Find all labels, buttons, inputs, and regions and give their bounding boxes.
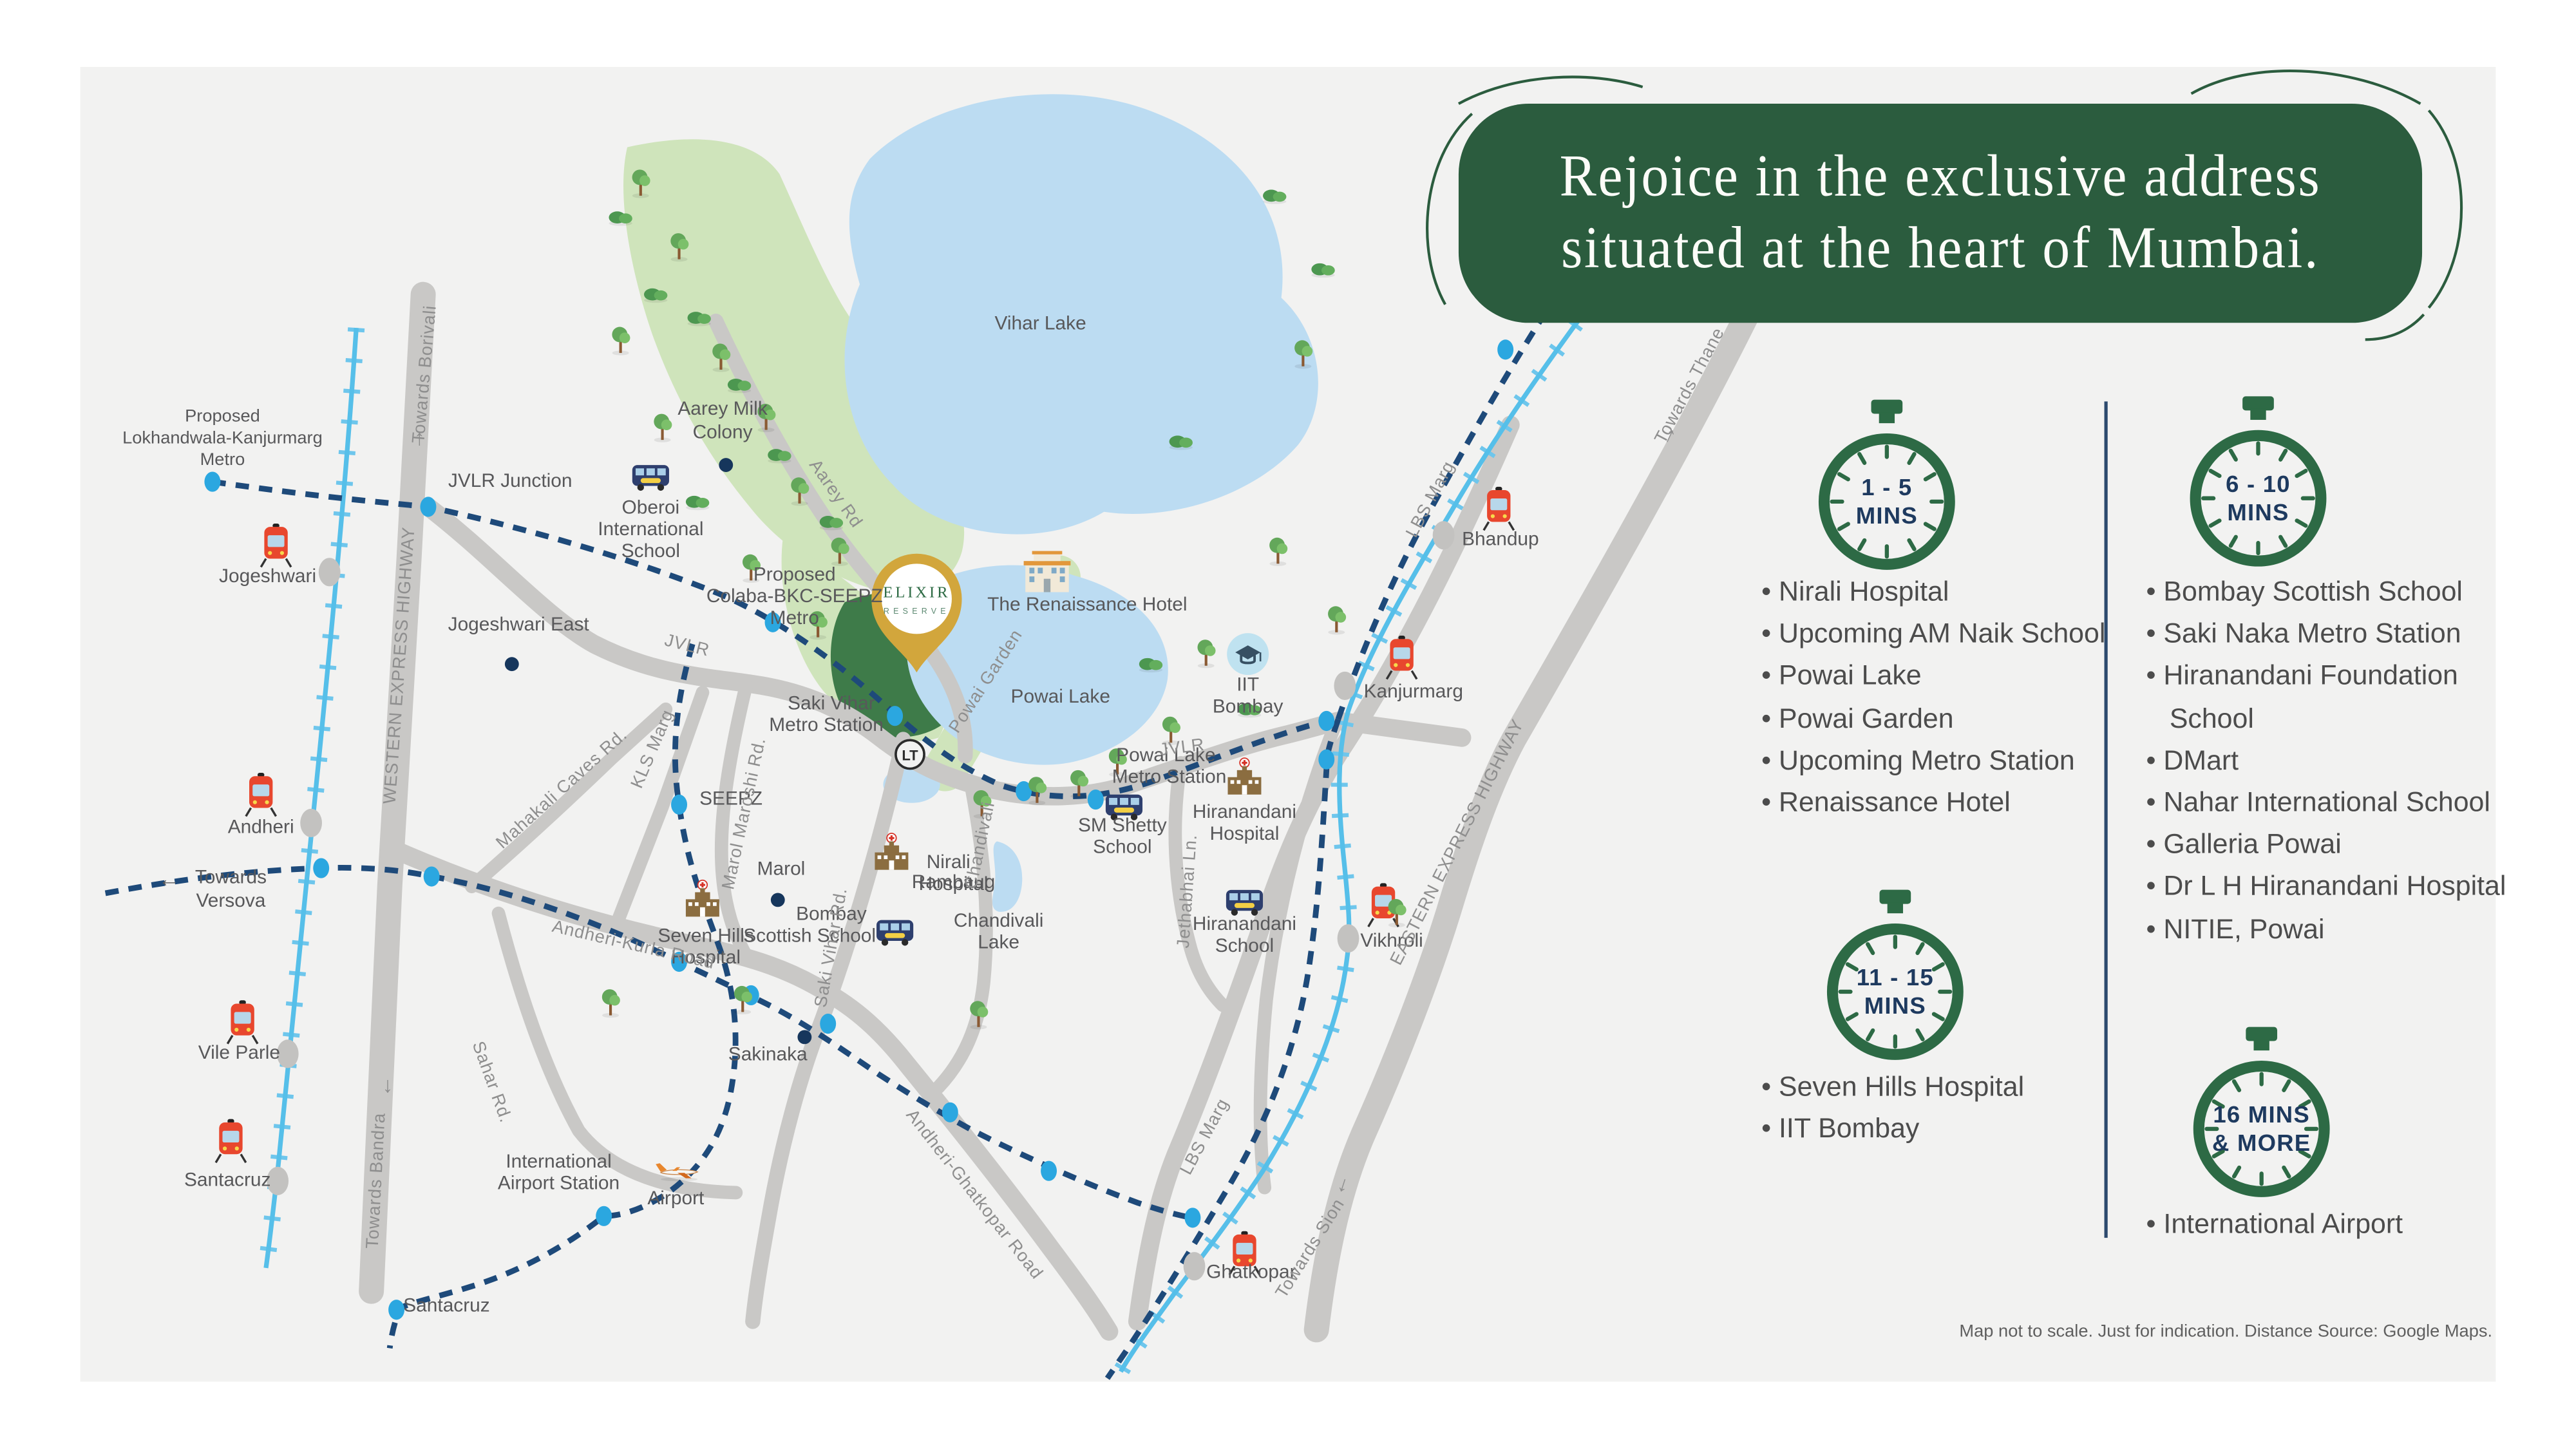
stopwatch-11-15: 11 - 15 MINS <box>1817 888 1974 1064</box>
rail-station-marker <box>1184 1252 1206 1280</box>
road-label: Andheri-Ghatkopar Road <box>902 1105 1047 1283</box>
bush-icon <box>1311 263 1334 278</box>
map-place-label: Marol <box>757 858 806 879</box>
map-place-label: Vihar Lake <box>994 313 1086 334</box>
map-place-label: ← <box>158 867 180 892</box>
map-place-label: Powai Lake <box>1011 686 1110 707</box>
svg-text:6 - 10: 6 - 10 <box>2226 471 2291 497</box>
tree-icon <box>1328 606 1346 634</box>
rail-station-marker <box>1334 672 1356 700</box>
svg-text:& MORE: & MORE <box>2212 1130 2311 1156</box>
metro-station-dot <box>820 1014 836 1034</box>
map-place-label: Towards <box>195 866 267 887</box>
map-place-label: JVLR Junction <box>448 470 573 491</box>
map-place-label: Hiranandani <box>1193 801 1296 822</box>
train-icon <box>1484 487 1514 531</box>
bus-icon <box>632 465 669 491</box>
poi-item: Powai Garden <box>1761 699 2116 741</box>
metro-station-dot <box>1184 1207 1200 1227</box>
map-place-label: SM Shetty <box>1078 815 1167 836</box>
map-place-label: Hiranandani <box>1193 913 1296 934</box>
map-place-label: Chandivali <box>954 910 1043 931</box>
map-place-label: School <box>1215 935 1274 956</box>
svg-text:1 - 5: 1 - 5 <box>1861 474 1912 500</box>
map-place-label: Proposed <box>185 406 260 426</box>
map-place-label: Kanjurmarg <box>1364 681 1463 702</box>
map-place-label: Scottish School <box>743 925 876 946</box>
project-name: ELIXIR <box>883 583 950 601</box>
poi-list-1-5: Nirali HospitalUpcoming AM Naik SchoolPo… <box>1761 572 2116 825</box>
poi-item: Renaissance Hotel <box>1761 783 2116 825</box>
metro-station-dot <box>942 1103 958 1122</box>
map-place-label: Oberoi <box>622 497 680 518</box>
metro-station-dot <box>596 1206 612 1226</box>
road-label: EASTERN EXPRESS HIGHWAY <box>1386 716 1528 969</box>
metro-station-dot <box>1318 750 1334 770</box>
map-place-label: International <box>506 1151 611 1172</box>
map-place-label: Jogeshwari <box>219 565 316 587</box>
poi-item: Upcoming Metro Station <box>1761 741 2116 782</box>
place-dot <box>771 893 785 907</box>
metro-station-dot <box>1318 711 1334 731</box>
map-place-label: Metro <box>200 449 245 469</box>
map-place-label: Aarey Milk <box>677 398 767 419</box>
project-sub: RESERVE <box>884 607 950 616</box>
map-place-label: Andheri <box>228 817 294 838</box>
metro-station-dot <box>671 795 687 815</box>
map-place-label: Colaba-BKC-SEEPZ <box>706 585 883 607</box>
rail-station-marker <box>319 558 341 586</box>
svg-text:MINS: MINS <box>1856 502 1918 529</box>
map-place-label: School <box>621 540 680 562</box>
metro-station-dot <box>313 858 329 878</box>
plane-icon <box>656 1163 697 1181</box>
svg-text:LT: LT <box>902 747 918 763</box>
metro-station-dot <box>1497 339 1513 359</box>
train-icon <box>216 1119 246 1163</box>
tree-icon <box>602 989 620 1018</box>
place-dot <box>797 1030 811 1044</box>
svg-text:MINS: MINS <box>1864 992 1926 1019</box>
svg-text:16 MINS: 16 MINS <box>2213 1101 2310 1128</box>
headline-banner: Rejoice in the exclusive address situate… <box>1459 104 2422 323</box>
map-place-label: Santacruz <box>403 1294 489 1316</box>
stopwatch-icon: 1 - 5 MINS <box>1808 398 1965 574</box>
stopwatch-icon: 16 MINS & MORE <box>2183 1025 2340 1201</box>
map-place-label: Sakinaka <box>728 1044 808 1065</box>
rail-station-marker <box>1338 924 1359 952</box>
lt-logo-icon: LT <box>896 740 924 768</box>
map-place-label: IIT <box>1236 674 1259 696</box>
hospital-icon <box>1227 758 1261 795</box>
poi-item: Dr L H Hiranandani Hospital <box>2146 867 2537 909</box>
map-place-label: Metro Station <box>1112 766 1227 788</box>
headline-line2: situated at the heart of Mumbai. <box>1561 216 2320 283</box>
tree-icon <box>1197 639 1215 668</box>
stopwatch-16-more: 16 MINS & MORE <box>2183 1025 2340 1201</box>
map-place-label: Hospital <box>1210 823 1280 844</box>
poi-item: Powai Lake <box>1761 656 2116 698</box>
train-icon <box>261 524 291 567</box>
poi-item: International Airport <box>2146 1204 2537 1246</box>
map-place-label: Bombay <box>1213 696 1283 717</box>
rail-station-marker <box>300 809 322 837</box>
map-place-label: Lokhandwala-Kanjurmarg <box>122 427 323 447</box>
stopwatch-6-10: 6 - 10 MINS <box>2179 395 2336 571</box>
poi-item: DMart <box>2146 741 2537 782</box>
map-place-label: Versova <box>196 890 265 911</box>
poi-item: Upcoming AM Naik School <box>1761 614 2116 656</box>
train-icon <box>1387 636 1417 679</box>
metro-station-dot <box>1088 790 1104 810</box>
place-dot <box>719 458 733 472</box>
map-place-label: Airport <box>647 1188 705 1209</box>
map-disclaimer: Map not to scale. Just for indication. D… <box>1959 1321 2492 1341</box>
poi-item: Bombay Scottish School <box>2146 572 2537 614</box>
poi-list-16-more: International Airport <box>2146 1204 2537 1246</box>
iit-icon <box>1227 633 1269 675</box>
stopwatch-1-5: 1 - 5 MINS <box>1808 398 1965 574</box>
map-place-label: Metro Station <box>769 714 884 735</box>
metro-station-dot <box>1041 1161 1057 1181</box>
road-label: Sahar Rd. <box>469 1038 516 1125</box>
page: LT ELIXIR RESERVE Vihar LakeAarey MilkCo… <box>0 0 2576 1449</box>
poi-item: Galleria Powai <box>2146 825 2537 867</box>
map-place-label: The Renaissance Hotel <box>987 594 1187 615</box>
metro-station-dot <box>204 471 220 491</box>
map-place-label: Proposed <box>753 563 836 585</box>
bush-icon <box>686 496 709 510</box>
road-label: Mahakali Caves Rd. <box>492 724 631 853</box>
hospital-icon <box>686 880 719 917</box>
poi-list-11-15: Seven Hills HospitalIIT Bombay <box>1761 1067 2116 1151</box>
svg-text:11 - 15: 11 - 15 <box>1857 964 1934 990</box>
tree-icon <box>654 414 672 442</box>
poi-item: Nirali Hospital <box>1761 572 2116 614</box>
map-place-label: Metro <box>770 607 819 629</box>
map-place-label: Saki Vihar <box>788 692 875 714</box>
tree-icon <box>612 327 630 355</box>
stopwatch-icon: 6 - 10 MINS <box>2179 395 2336 571</box>
train-icon <box>246 773 276 817</box>
poi-item: NITIE, Powai <box>2146 909 2537 951</box>
bus-icon <box>876 920 913 946</box>
svg-text:MINS: MINS <box>2227 499 2289 526</box>
map-place-label: Lake <box>978 932 1019 953</box>
map-place-label: Colony <box>693 422 753 443</box>
map-place-label: Jogeshwari East <box>448 614 590 635</box>
metro-station-dot <box>388 1300 404 1320</box>
poi-item: Saki Naka Metro Station <box>2146 614 2537 656</box>
rail-station-marker <box>1433 521 1455 549</box>
map-place-label: School <box>1093 837 1151 858</box>
poi-item: IIT Bombay <box>1761 1110 2116 1151</box>
poi-item: Nahar International School <box>2146 783 2537 825</box>
road-label: ↓ <box>383 1073 394 1097</box>
map-place-label: International <box>598 518 703 540</box>
stopwatch-icon: 11 - 15 MINS <box>1817 888 1974 1064</box>
place-dot <box>505 657 519 671</box>
metro-station-dot <box>420 497 436 516</box>
metro-station-dot <box>424 866 440 886</box>
poi-list-6-10: Bombay Scottish SchoolSaki Naka Metro St… <box>2146 572 2537 951</box>
map-place-label: Santacruz <box>184 1170 270 1191</box>
map-place-label: Bhandup <box>1462 529 1539 550</box>
map-place-label: Airport Station <box>498 1173 620 1194</box>
poi-item: Seven Hills Hospital <box>1761 1067 2116 1109</box>
road-label: ↑ <box>414 426 426 450</box>
poi-item: Hiranandani Foundation School <box>2146 656 2537 741</box>
map-place-label: Vile Parle <box>198 1042 280 1063</box>
headline-line1: Rejoice in the exclusive address <box>1560 144 2322 211</box>
bus-icon <box>1226 890 1263 916</box>
bush-icon <box>1263 190 1286 204</box>
tree-icon <box>1269 538 1287 566</box>
train-icon <box>227 1000 258 1044</box>
metro-station-dot <box>887 706 903 726</box>
